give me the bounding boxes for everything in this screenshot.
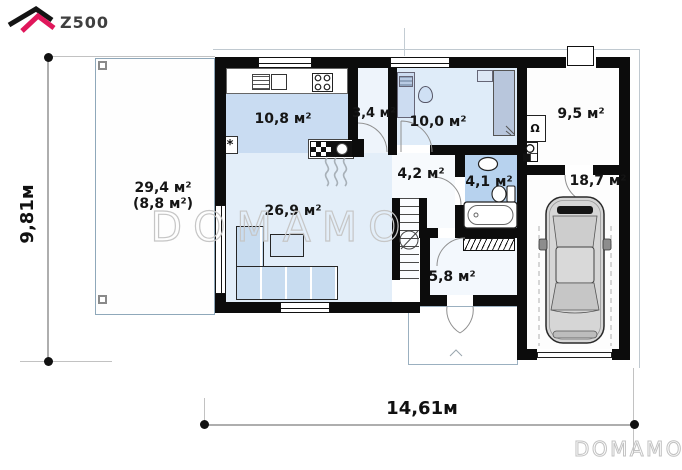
wall-segment	[419, 198, 427, 238]
garage-door	[537, 352, 612, 358]
fireplace-icon	[310, 141, 332, 157]
window	[390, 57, 450, 68]
wall-segment	[430, 145, 517, 155]
wall-segment	[215, 57, 226, 205]
terrace-glazed-door	[215, 205, 226, 294]
boiler-exterior-door	[567, 46, 594, 66]
watermark-corner: DOMAMO	[574, 437, 682, 461]
dimension-dot	[630, 420, 639, 429]
radiator-icon	[463, 238, 515, 251]
roof-logo-icon	[6, 4, 58, 34]
stove-icon	[312, 73, 333, 92]
terrace-area-alt: (8,8 м²)	[133, 196, 193, 212]
helper-line	[404, 28, 405, 56]
terrace-area: 29,4 м²	[133, 180, 193, 196]
wall-segment	[330, 302, 420, 313]
room-label-corridor: 3,4 м²	[352, 106, 396, 122]
room-bathroom-floor	[465, 155, 517, 228]
room-label-terrace: 29,4 м² (8,8 м²)	[133, 180, 193, 212]
entrance-porch	[408, 306, 518, 365]
eaves-line-right	[639, 49, 640, 368]
wall-segment	[455, 155, 465, 177]
sink-drainboard-icon	[252, 74, 270, 90]
width-dimension-label: 14,61м	[352, 398, 492, 419]
room-label-boiler: 9,5 м²	[557, 106, 604, 122]
sink-basin-icon	[271, 74, 287, 90]
wall-segment	[420, 228, 430, 306]
height-dimension-label: 9,81м	[18, 174, 38, 254]
wall-segment	[392, 198, 400, 280]
dimension-dot	[44, 357, 53, 366]
chair-icon	[418, 86, 433, 103]
brand-name: Z500	[60, 13, 109, 32]
printer-icon	[399, 76, 413, 87]
extension-line	[633, 368, 634, 454]
dimension-dot	[44, 53, 53, 62]
wall-segment	[348, 57, 358, 140]
wall-segment	[619, 57, 630, 360]
wall-segment	[473, 295, 520, 306]
extension-line	[20, 361, 112, 362]
stairs-icon	[400, 198, 419, 280]
terrace-post	[98, 61, 107, 70]
wall-segment	[430, 228, 438, 238]
window	[258, 57, 312, 68]
room-label-garage: 18,7 м²	[570, 173, 627, 189]
room-label-cabinet: 10,0 м²	[410, 114, 467, 130]
boiler-icon: Ω	[524, 115, 546, 142]
room-garage-floor	[527, 175, 619, 349]
sofa-icon	[236, 266, 338, 300]
window	[280, 302, 330, 313]
height-dimension-line	[47, 57, 49, 362]
room-label-kitchen: 10,8 м²	[255, 111, 312, 127]
fridge-symbol: *	[227, 138, 234, 153]
boiler-symbol: Ω	[530, 122, 539, 135]
wall-segment	[517, 349, 537, 360]
room-label-hall: 4,2 м²	[397, 166, 444, 182]
fireplace-flue	[332, 141, 352, 157]
width-dimension-line	[205, 424, 635, 426]
terrace-post	[98, 295, 107, 304]
extension-line	[48, 56, 215, 57]
wardrobe-icon	[493, 70, 515, 136]
wall-segment	[222, 302, 280, 313]
coffee-table-icon	[270, 234, 304, 257]
wall-segment	[517, 57, 527, 360]
brand-logo: Z500	[6, 4, 126, 36]
wall-segment	[527, 165, 565, 175]
wall-segment	[450, 57, 566, 68]
wall-segment	[455, 228, 517, 238]
dimension-dot	[200, 420, 209, 429]
room-label-vestibule: 5,8 м²	[428, 269, 475, 285]
room-label-living: 26,9 м²	[265, 203, 322, 219]
shelf-icon	[477, 70, 493, 82]
wall-segment	[612, 349, 630, 360]
room-label-bathroom: 4,1 м²	[465, 174, 512, 190]
wall-segment	[352, 139, 364, 157]
